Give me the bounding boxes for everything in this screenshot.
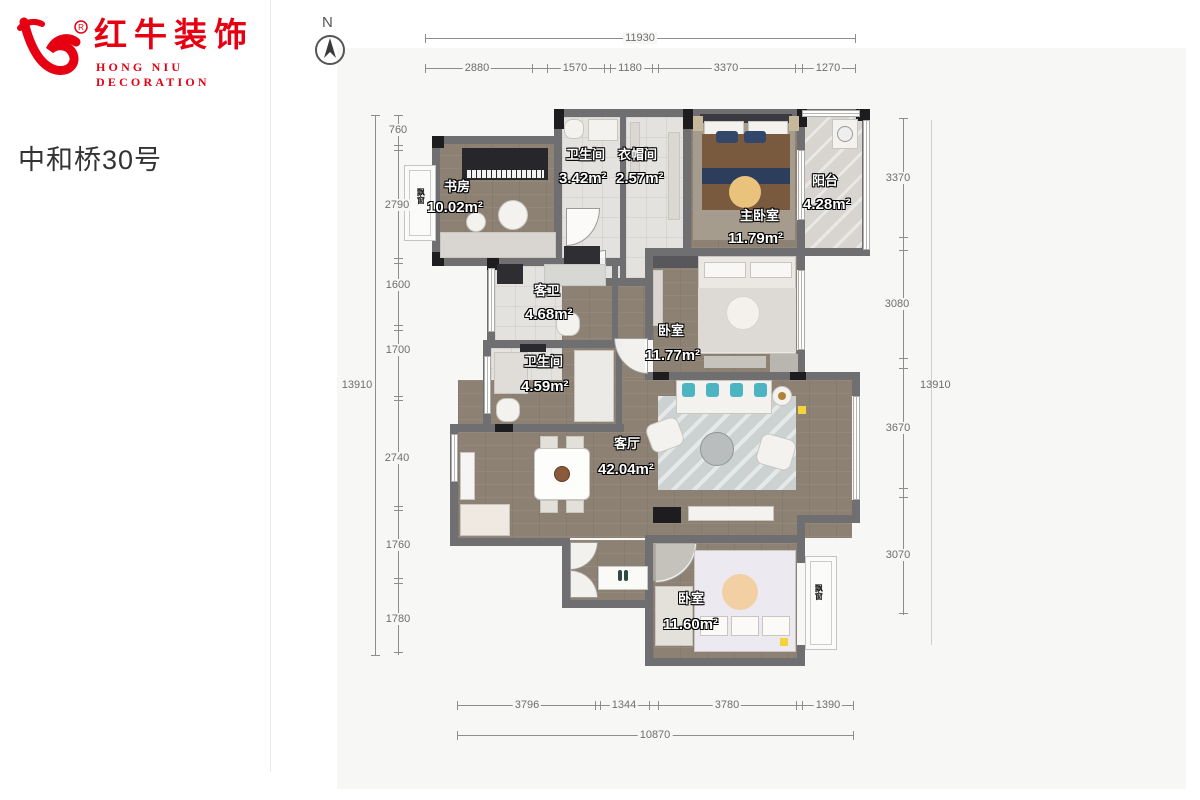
balcony-side-window <box>863 120 870 250</box>
room-area-bath-mid: 4.59m² <box>521 378 569 395</box>
master-throw-pillow <box>744 131 766 143</box>
dim-left-5: 1760 <box>384 539 412 551</box>
wall <box>645 535 653 666</box>
dim-top-4: 1270 <box>814 62 842 74</box>
tick <box>425 34 426 43</box>
guest-bath-window <box>488 268 495 332</box>
wall <box>805 515 860 523</box>
nightstand <box>789 116 799 131</box>
tick <box>457 731 458 740</box>
balcony-top-window <box>802 110 860 117</box>
wall <box>645 248 653 340</box>
bedroom2-closet <box>653 256 699 268</box>
column <box>790 372 806 380</box>
bay-window-label: 飘窗 <box>814 584 822 600</box>
shoes <box>624 570 628 581</box>
room-area-balcony: 4.28m² <box>803 196 851 213</box>
room-label-balcony: 阳台 <box>812 170 838 189</box>
room-label-cloak: 衣帽间 <box>618 144 657 163</box>
room-area-study: 10.02m² <box>427 199 483 216</box>
sideboard <box>460 452 475 500</box>
bedroom2-duvet-flower <box>726 296 760 330</box>
tick <box>899 368 908 369</box>
sofa-pillow <box>706 383 719 397</box>
tick <box>855 34 856 43</box>
dim-top-3: 3370 <box>712 62 740 74</box>
cabinet <box>460 504 510 536</box>
tick <box>394 258 403 259</box>
bedroom3-duvet-flower <box>722 574 758 610</box>
shoes <box>618 570 622 581</box>
bath-top-toilet <box>564 119 584 139</box>
tick <box>394 652 403 653</box>
bath-mid-window <box>484 356 491 414</box>
washing-machine-drum <box>837 126 853 142</box>
bedroom2-pillow <box>704 262 746 278</box>
cloak-rail-right <box>668 132 680 220</box>
study-table <box>498 200 528 230</box>
dim-bottom-1: 1344 <box>610 699 638 711</box>
room-area-guest-bath: 4.68m² <box>525 306 573 323</box>
tick <box>371 115 380 116</box>
tick <box>649 701 650 710</box>
dim-bottom-3: 1390 <box>814 699 842 711</box>
sofa-pillow <box>730 383 743 397</box>
bedroom2-rug <box>770 354 798 372</box>
tick <box>394 396 403 397</box>
tick <box>802 701 803 710</box>
room-label-bath-top: 卫生间 <box>566 144 605 163</box>
dining-window <box>451 434 458 482</box>
room-label-bedroom2: 卧室 <box>658 320 684 339</box>
tick <box>802 64 803 73</box>
tick <box>394 506 403 507</box>
wall <box>645 535 805 543</box>
tick <box>899 613 908 614</box>
column <box>683 109 693 129</box>
tick <box>796 701 797 710</box>
bath-top-sink <box>588 119 618 141</box>
project-title: 中和桥30号 <box>18 138 162 177</box>
wall <box>612 258 618 348</box>
tick <box>595 701 596 710</box>
dining-chair <box>540 436 558 449</box>
dim-right-total: 13910 <box>920 379 951 391</box>
tick <box>652 64 653 73</box>
bedroom2-pillow <box>750 262 792 278</box>
dim-left-4: 2740 <box>383 452 411 464</box>
floor-plan-page: R 红牛装饰 HONG NIU DECORATION 中和桥30号 N <box>0 0 1200 800</box>
entrance-mat <box>598 566 648 590</box>
bedroom2-bench <box>704 356 766 368</box>
wall <box>645 248 805 256</box>
tick <box>899 488 908 489</box>
tick <box>394 325 403 326</box>
dim-bottom-2: 3780 <box>713 699 741 711</box>
sofa-pillow <box>754 383 767 397</box>
tick <box>899 250 908 251</box>
dim-left-0: 760 <box>387 124 409 136</box>
room-label-guest-bath: 客卫 <box>534 280 560 299</box>
room-label-living: 客厅 <box>614 433 640 452</box>
brand-name-cn: 红牛装饰 <box>94 18 254 51</box>
dim-line-right-segments <box>903 118 904 615</box>
dim-left-2: 1600 <box>384 279 412 291</box>
tick <box>899 358 908 359</box>
dim-right-2: 3670 <box>884 422 912 434</box>
bull-logo-icon: R <box>16 12 90 84</box>
dim-top-2: 1180 <box>616 62 644 74</box>
dim-top-0: 2880 <box>463 62 491 74</box>
marker-yellow <box>780 638 788 646</box>
dim-line-left-total <box>375 115 376 655</box>
dim-left-3: 1700 <box>384 344 412 356</box>
bedroom3-pillow <box>731 616 759 636</box>
room-area-living: 42.04m² <box>598 461 654 478</box>
dim-right-1: 3080 <box>883 298 911 310</box>
room-area-master: 11.79m² <box>728 230 783 247</box>
room-label-master: 主卧室 <box>740 205 779 224</box>
compass-icon <box>312 32 348 68</box>
room-area-bedroom2: 11.77m² <box>645 347 700 364</box>
panel-divider <box>270 0 271 772</box>
dim-left-6: 1780 <box>384 613 412 625</box>
wall <box>562 600 653 608</box>
tick <box>394 400 403 401</box>
tick <box>457 701 458 710</box>
column <box>432 136 444 148</box>
dim-top-total: 11930 <box>623 32 657 44</box>
tick <box>604 64 605 73</box>
brand-logo: R 红牛装饰 HONG NIU DECORATION <box>16 12 276 90</box>
piano-keys <box>466 170 544 178</box>
bedroom3-pillow <box>762 616 790 636</box>
dim-right-0: 3370 <box>884 172 912 184</box>
dim-right-3: 3070 <box>884 549 912 561</box>
room-label-bath-mid: 卫生间 <box>524 351 563 370</box>
master-bed-cushion <box>729 176 761 208</box>
room-area-cloak: 2.57m² <box>616 170 664 187</box>
bedroom3-bay-window <box>805 556 837 650</box>
wall <box>450 424 624 432</box>
room-label-bedroom3: 卧室 <box>678 588 704 607</box>
dining-chair <box>566 436 584 449</box>
registered-mark: R <box>78 23 84 32</box>
tick <box>899 237 908 238</box>
dim-bottom-0: 3796 <box>513 699 541 711</box>
coffee-table <box>700 432 734 466</box>
tick <box>394 330 403 331</box>
tick <box>371 655 380 656</box>
tick <box>610 64 611 73</box>
table-lamp <box>778 392 786 400</box>
column <box>653 372 669 380</box>
tick <box>394 115 403 116</box>
dim-left-1: 2790 <box>383 199 411 211</box>
sofa-pillow <box>682 383 695 397</box>
bath-mid-toilet <box>496 398 520 422</box>
tv-console <box>688 506 774 521</box>
wall <box>797 645 805 666</box>
tick <box>394 510 403 511</box>
brand-name-en: HONG NIU DECORATION <box>96 60 276 90</box>
tick <box>795 64 796 73</box>
tick <box>394 145 403 146</box>
dining-centerpiece <box>554 466 570 482</box>
wall <box>620 117 626 278</box>
bedroom2-window <box>798 270 805 350</box>
bedroom2-shelf <box>653 270 663 326</box>
wall <box>432 136 562 144</box>
study-desk <box>440 232 556 258</box>
wall <box>645 658 805 666</box>
tick <box>855 64 856 73</box>
wall <box>562 546 570 608</box>
tick <box>394 150 403 151</box>
tick <box>658 64 659 73</box>
wall <box>645 372 860 380</box>
wall <box>797 248 805 270</box>
room-label-study: 书房 <box>444 176 470 195</box>
bay-window-label: 飘窗 <box>416 188 424 204</box>
room-area-bedroom3: 11.60m² <box>663 616 718 633</box>
tick <box>658 701 659 710</box>
dim-bottom-total: 10870 <box>638 729 673 741</box>
nightstand <box>693 116 703 131</box>
dining-chair <box>540 500 558 513</box>
tick <box>394 583 403 584</box>
dim-left-total: 13910 <box>340 379 375 391</box>
wall <box>554 109 562 286</box>
wall <box>683 109 691 256</box>
master-throw-pillow <box>716 131 738 143</box>
tick <box>394 263 403 264</box>
marker-yellow <box>798 406 806 414</box>
tick <box>600 701 601 710</box>
room-area-bath-top: 3.42m² <box>559 170 607 187</box>
tick <box>853 701 854 710</box>
tick <box>899 118 908 119</box>
compass-north-label: N <box>322 14 333 31</box>
bath-mid-shower <box>574 350 614 422</box>
wall <box>852 372 860 396</box>
dim-line-left-segments <box>398 115 399 655</box>
dim-top-1: 1570 <box>561 62 589 74</box>
tick <box>532 64 533 73</box>
tick <box>394 578 403 579</box>
dining-chair <box>566 500 584 513</box>
tick <box>853 731 854 740</box>
wall <box>450 538 570 546</box>
tick <box>899 497 908 498</box>
column <box>653 507 681 523</box>
guest-bath-cabinet <box>497 264 523 284</box>
wall <box>797 535 805 563</box>
tick <box>547 64 548 73</box>
column <box>554 109 564 129</box>
column <box>495 424 513 432</box>
tick <box>425 64 426 73</box>
wall <box>483 340 622 348</box>
living-window <box>853 396 860 500</box>
